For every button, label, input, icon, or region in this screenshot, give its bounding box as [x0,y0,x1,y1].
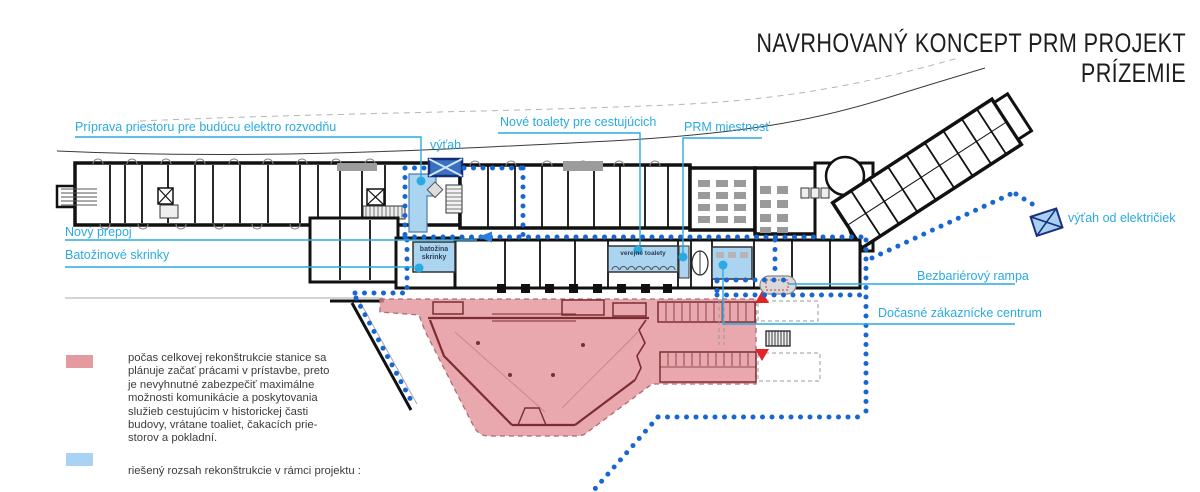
legend-red-swatch [66,355,93,368]
callout-vytah-od-elektriciek: výťah od električiek [1068,211,1176,225]
callout-nove-toalety: Nové toalety pre cestujúcich [500,115,656,129]
legend-blue-intro: riešený rozsah rekonštrukcie v rámci pro… [128,465,361,477]
tram-elevator-icon [1031,208,1063,235]
room-label-verejne-toalety: verejné toalety [609,250,677,257]
callout-docasne-zakaznicke-centrum: Dočasné zákaznícke centrum [878,306,1042,320]
callout-prm-miestnost: PRM miestnosť [684,120,770,134]
elevator-icon [429,159,462,176]
page-title: NAVRHOVANÝ KONCEPT PRM PROJEKT PRÍZEMIE [756,28,1186,88]
room-label-batozina-line2: skrinky [413,254,455,262]
callout-novy-prepoj: Nový prepoj [65,225,132,239]
floor-plan-page: NAVRHOVANÝ KONCEPT PRM PROJEKT PRÍZEMIE … [0,0,1200,492]
room-label-batozina: batožina skrinky [413,246,455,262]
red-reconstruction-zone [380,299,756,436]
room-label-batozina-line1: batožina [413,246,455,254]
page-title-line1: NAVRHOVANÝ KONCEPT PRM PROJEKT [756,28,1186,58]
legend-blue-swatch [66,453,93,466]
callout-bezbarierovy-rampa: Bezbariérový rampa [917,269,1029,283]
callout-elektro-rozvodna: Príprava priestoru pre budúcu elektro ro… [75,120,336,134]
legend-blue-text: riešený rozsah rekonštrukcie v rámci pro… [128,452,548,492]
callout-batozinove-skrinky: Batožinové skrinky [65,248,169,262]
arrow-down-marker [755,349,769,361]
legend-red-text: počas celkovej rekonštrukcie stanice sa … [128,352,390,446]
callout-vytah: výťah [430,138,461,152]
building-main-wing [57,159,460,229]
prm-room [712,247,752,279]
page-title-line2: PRÍZEMIE [756,58,1186,88]
red-arrow-markers [755,291,769,361]
